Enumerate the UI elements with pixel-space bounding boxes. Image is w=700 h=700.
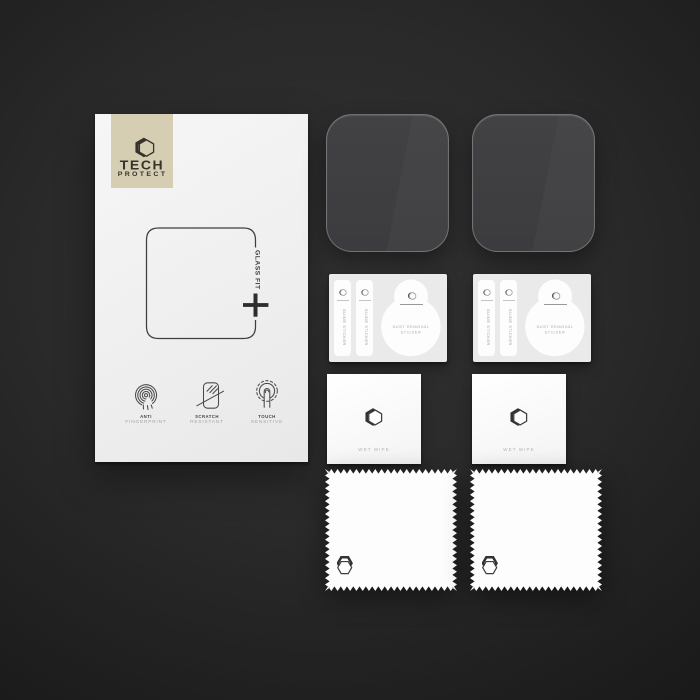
- svg-text:GLASS FIT: GLASS FIT: [254, 250, 261, 290]
